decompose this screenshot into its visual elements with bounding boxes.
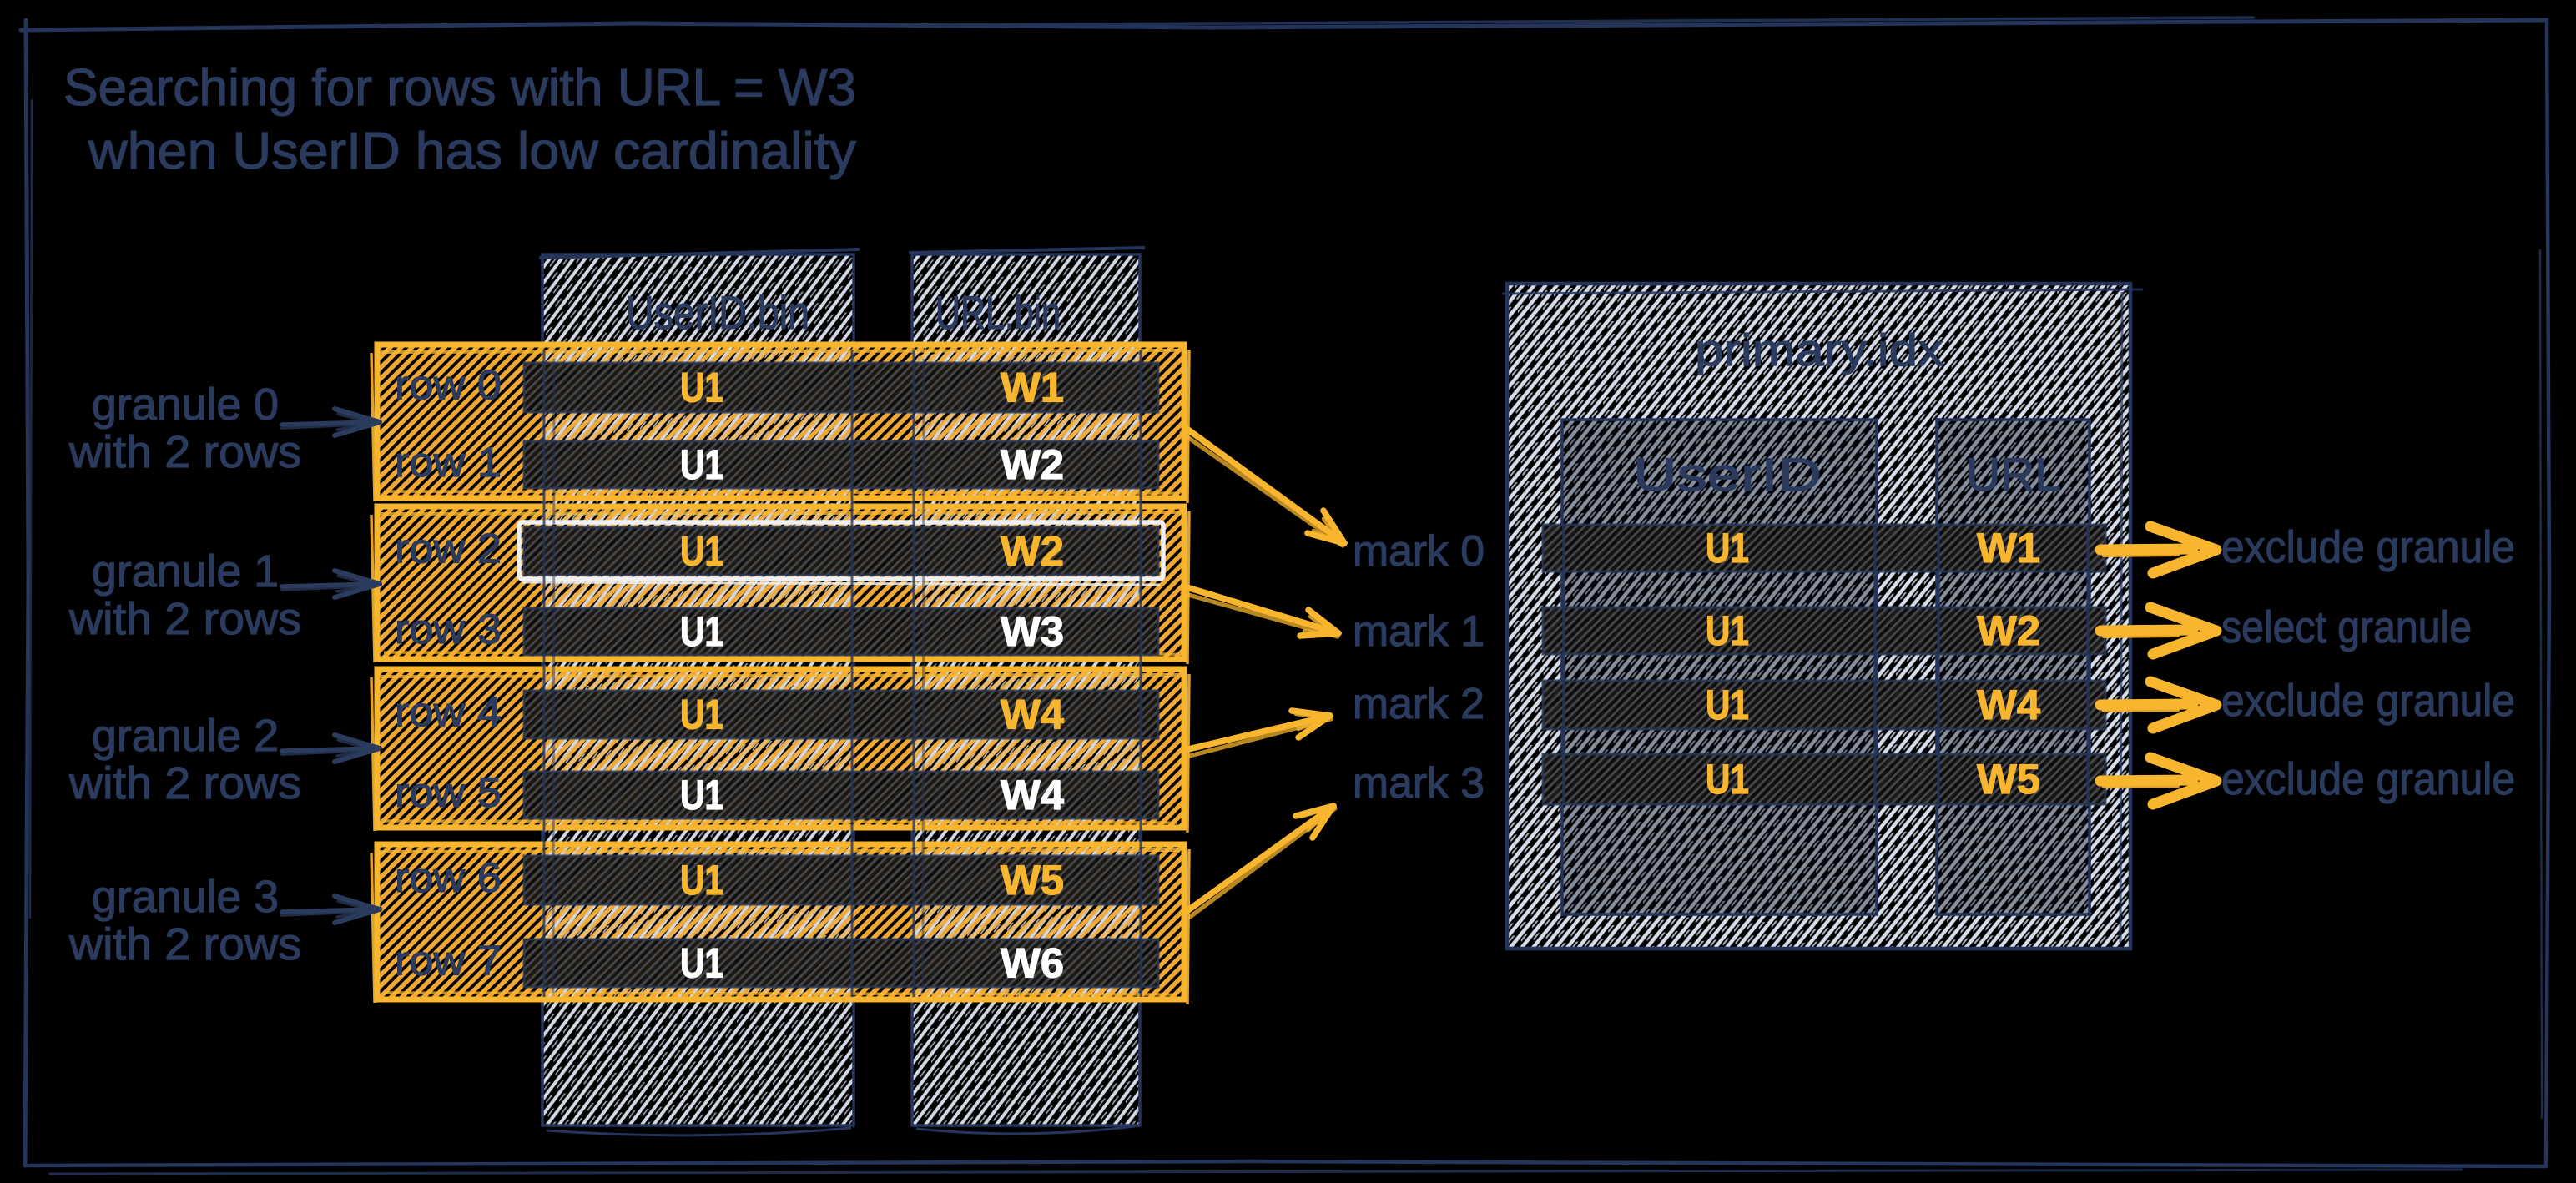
svg-text:row 7: row 7 bbox=[395, 938, 502, 984]
svg-text:primary.idx: primary.idx bbox=[1695, 325, 1943, 375]
svg-text:granule 1: granule 1 bbox=[92, 546, 279, 597]
svg-text:U1: U1 bbox=[1706, 525, 1749, 571]
svg-text:row 2: row 2 bbox=[395, 526, 502, 572]
svg-text:W4: W4 bbox=[1977, 682, 2040, 728]
svg-text:row 1: row 1 bbox=[395, 439, 502, 486]
svg-text:exclude granule: exclude granule bbox=[2221, 754, 2515, 804]
svg-text:U1: U1 bbox=[680, 772, 723, 818]
svg-text:U1: U1 bbox=[1706, 682, 1749, 728]
svg-text:U1: U1 bbox=[1706, 607, 1749, 654]
svg-text:U1: U1 bbox=[680, 692, 723, 738]
svg-text:mark 2: mark 2 bbox=[1353, 680, 1485, 728]
svg-text:W4: W4 bbox=[1001, 772, 1064, 818]
svg-text:W5: W5 bbox=[1977, 756, 2040, 803]
svg-text:W2: W2 bbox=[1001, 528, 1064, 575]
svg-text:W2: W2 bbox=[1977, 607, 2040, 654]
svg-text:UserID.bin: UserID.bin bbox=[626, 286, 809, 339]
svg-text:select granule: select granule bbox=[2221, 602, 2472, 652]
svg-text:row 0: row 0 bbox=[395, 362, 502, 409]
svg-text:mark 0: mark 0 bbox=[1353, 527, 1485, 576]
svg-text:W2: W2 bbox=[1001, 441, 1064, 488]
svg-text:with 2 rows: with 2 rows bbox=[68, 427, 301, 477]
svg-text:W1: W1 bbox=[1001, 365, 1064, 411]
svg-text:U1: U1 bbox=[1706, 756, 1749, 803]
svg-text:granule 0: granule 0 bbox=[92, 380, 279, 430]
svg-text:W6: W6 bbox=[1001, 940, 1064, 987]
svg-text:with 2 rows: with 2 rows bbox=[68, 919, 301, 969]
svg-text:W3: W3 bbox=[1001, 608, 1064, 655]
svg-text:mark 3: mark 3 bbox=[1353, 759, 1485, 808]
svg-text:row 5: row 5 bbox=[395, 769, 502, 816]
svg-text:W4: W4 bbox=[1001, 692, 1064, 738]
svg-text:mark 1: mark 1 bbox=[1353, 607, 1485, 656]
svg-text:U1: U1 bbox=[680, 857, 723, 904]
svg-text:granule 3: granule 3 bbox=[92, 872, 279, 922]
svg-text:exclude granule: exclude granule bbox=[2221, 676, 2515, 726]
svg-text:with 2 rows: with 2 rows bbox=[68, 758, 301, 808]
svg-text:exclude granule: exclude granule bbox=[2221, 522, 2515, 572]
svg-text:when UserID has low cardinalit: when UserID has low cardinality bbox=[88, 123, 856, 180]
svg-text:granule 2: granule 2 bbox=[92, 711, 279, 761]
svg-text:URL: URL bbox=[1966, 448, 2061, 501]
svg-text:U1: U1 bbox=[680, 608, 723, 655]
svg-text:row 4: row 4 bbox=[395, 689, 502, 736]
svg-text:U1: U1 bbox=[680, 365, 723, 411]
svg-text:U1: U1 bbox=[680, 528, 723, 575]
svg-text:U1: U1 bbox=[680, 441, 723, 488]
svg-text:UserID: UserID bbox=[1633, 448, 1822, 501]
svg-text:W5: W5 bbox=[1001, 857, 1064, 904]
svg-text:U1: U1 bbox=[680, 940, 723, 987]
svg-text:with 2 rows: with 2 rows bbox=[68, 594, 301, 644]
svg-text:row 3: row 3 bbox=[395, 606, 502, 652]
svg-text:row 6: row 6 bbox=[395, 854, 502, 901]
svg-text:Searching for rows with URL =: Searching for rows with URL = W3 bbox=[63, 59, 856, 117]
svg-text:W1: W1 bbox=[1977, 525, 2040, 571]
svg-text:URL.bin: URL.bin bbox=[935, 286, 1061, 339]
